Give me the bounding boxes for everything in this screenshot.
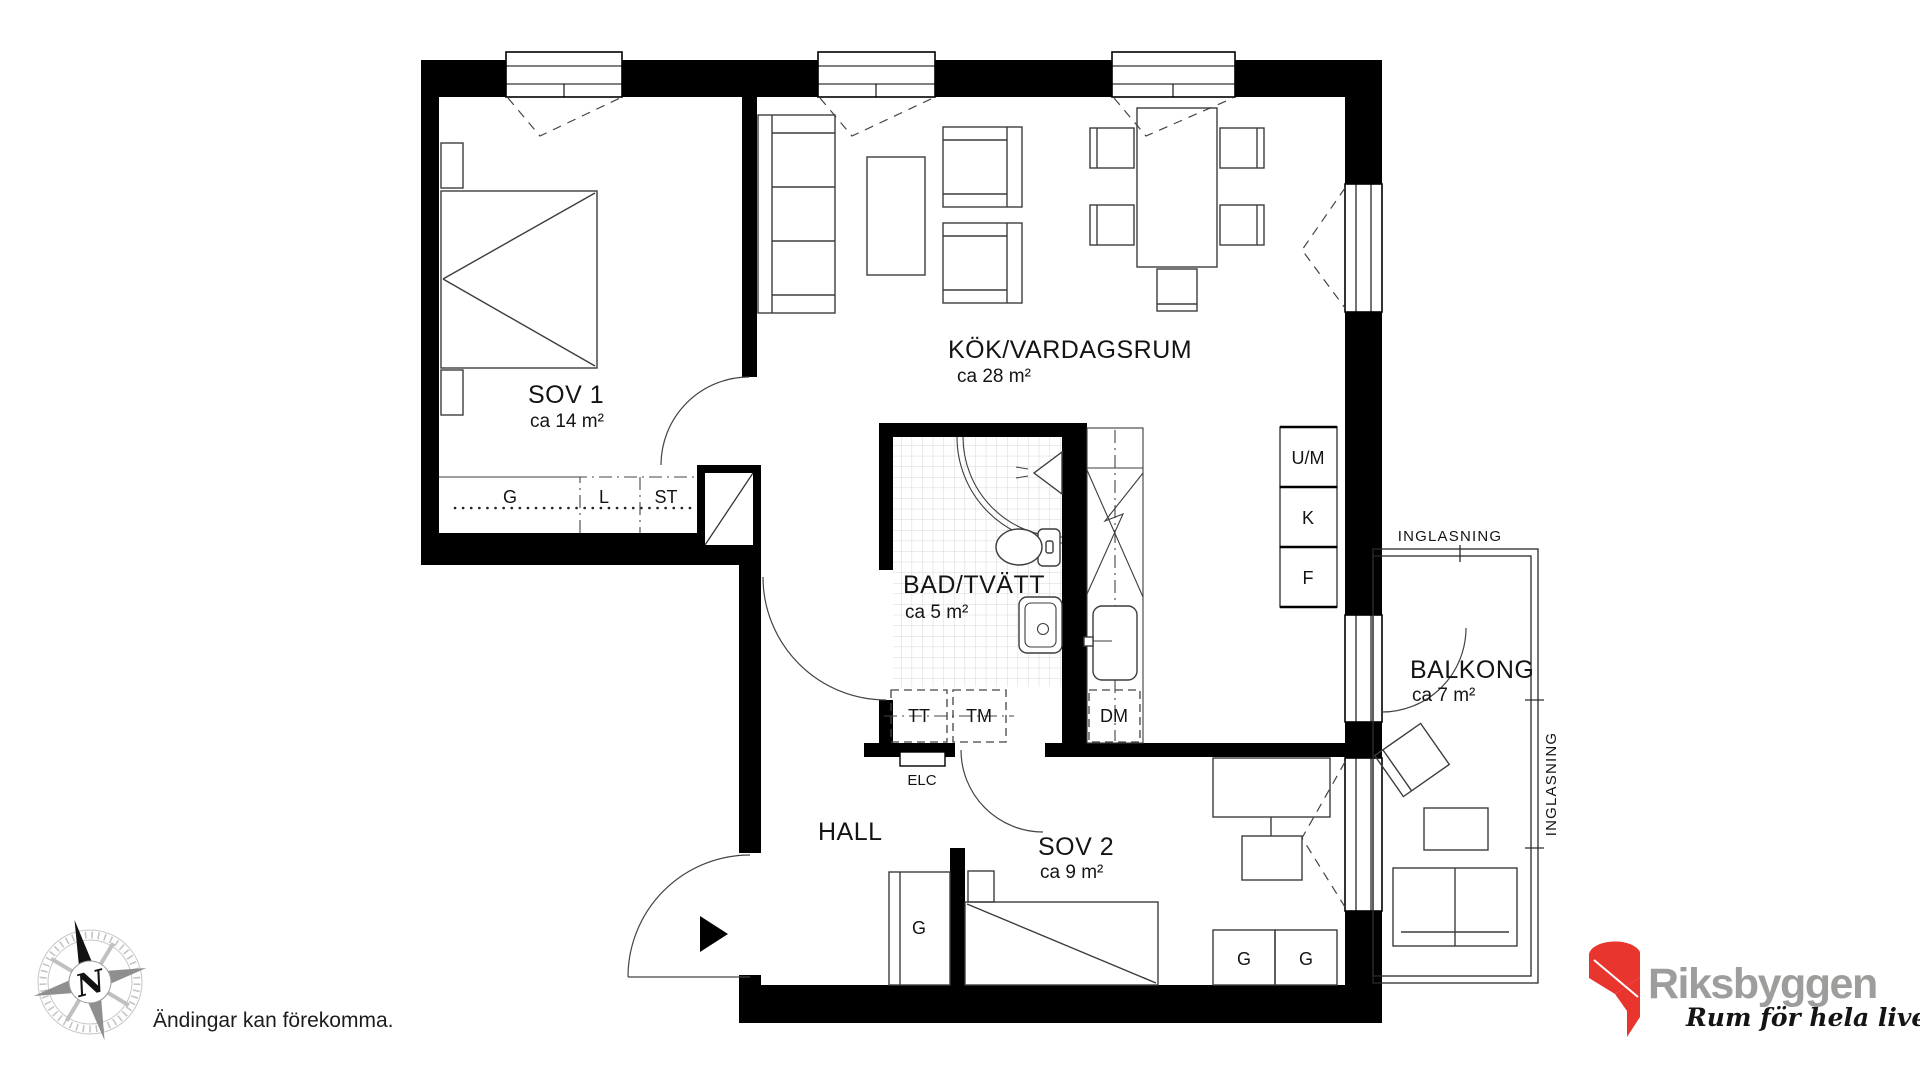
entry-arrow-icon xyxy=(700,916,728,952)
sov1-furniture xyxy=(441,143,597,415)
label-sov2: SOV 2 xyxy=(1038,833,1114,861)
label-dryer: TT xyxy=(908,706,930,726)
dining-set xyxy=(1090,108,1264,311)
logo-tagline: Rum för hela livet xyxy=(1685,1003,1920,1032)
riksbyggen-ribbon-icon xyxy=(1589,942,1640,1037)
door-sov2 xyxy=(961,750,1043,832)
label-freezer: F xyxy=(1303,568,1314,588)
balcony-armchair xyxy=(1375,723,1450,796)
label-cleaning: ST xyxy=(654,487,677,507)
bed-sov1 xyxy=(441,191,597,368)
dining-table xyxy=(1137,108,1217,267)
label-bad: BAD/TVÄTT xyxy=(903,571,1045,599)
label-sov1: SOV 1 xyxy=(528,381,604,409)
label-elc: ELC xyxy=(907,772,936,789)
sofa xyxy=(758,115,835,313)
label-glazing-top: INGLASNING xyxy=(1398,528,1503,545)
toilet-icon xyxy=(996,529,1060,566)
kitchen-counter xyxy=(1084,428,1143,743)
balcony-sofa xyxy=(1393,868,1517,946)
label-fridge: K xyxy=(1302,508,1314,528)
door-bathroom xyxy=(763,577,886,700)
nightstand xyxy=(968,871,994,902)
entry-door xyxy=(628,855,750,977)
label-dishwasher: DM xyxy=(1100,706,1128,726)
door-sov1 xyxy=(661,377,749,465)
label-wardrobe-sov2-left: G xyxy=(1237,949,1251,969)
label-linen: L xyxy=(599,487,609,507)
window-kok-east xyxy=(1302,184,1382,312)
desk xyxy=(1213,758,1330,817)
window-sov2 xyxy=(1302,758,1382,911)
area-balkong: ca 7 m² xyxy=(1412,685,1475,706)
bathroom-sink-icon xyxy=(1019,597,1062,653)
label-oven-micro: U/M xyxy=(1292,448,1325,468)
area-sov2: ca 9 m² xyxy=(1040,862,1103,883)
label-wardrobe-hall: G xyxy=(912,918,926,938)
label-hall: HALL xyxy=(818,818,883,846)
area-bad: ca 5 m² xyxy=(905,602,968,623)
kitchen-sink-icon xyxy=(1084,606,1137,680)
nightstand xyxy=(441,370,463,415)
label-wardrobe-sov1: G xyxy=(503,487,517,507)
label-kok: KÖK/VARDAGSRUM xyxy=(948,336,1192,364)
sov2-furniture xyxy=(965,758,1337,985)
armchair xyxy=(943,127,1022,207)
balcony xyxy=(1373,545,1544,983)
compass-rose: N xyxy=(18,906,161,1054)
floorplan-page: SOV 1 ca 14 m² KÖK/VARDAGSRUM ca 28 m² B… xyxy=(0,0,1920,1080)
balcony-table xyxy=(1424,808,1488,850)
coffee-table xyxy=(867,157,925,275)
electrical-cabinet xyxy=(900,752,945,766)
area-kok: ca 28 m² xyxy=(957,366,1031,387)
nightstand xyxy=(441,143,463,188)
label-balkong: BALKONG xyxy=(1410,656,1534,684)
disclaimer-text: Ändingar kan förekomma. xyxy=(153,1009,393,1032)
area-sov1: ca 14 m² xyxy=(530,411,604,432)
label-glazing-right: INGLASNING xyxy=(1543,732,1560,837)
label-wardrobe-sov2-right: G xyxy=(1299,949,1313,969)
armchair xyxy=(943,223,1022,303)
logo-wordmark: Riksbyggen xyxy=(1648,960,1877,1008)
riksbyggen-logo: Riksbyggen Rum för hela livet xyxy=(1589,942,1920,1037)
window-sov1 xyxy=(506,52,622,136)
floorplan-drawing: SOV 1 ca 14 m² KÖK/VARDAGSRUM ca 28 m² B… xyxy=(0,0,1920,1080)
desk-chair xyxy=(1242,836,1302,880)
label-washer: TM xyxy=(966,706,992,726)
